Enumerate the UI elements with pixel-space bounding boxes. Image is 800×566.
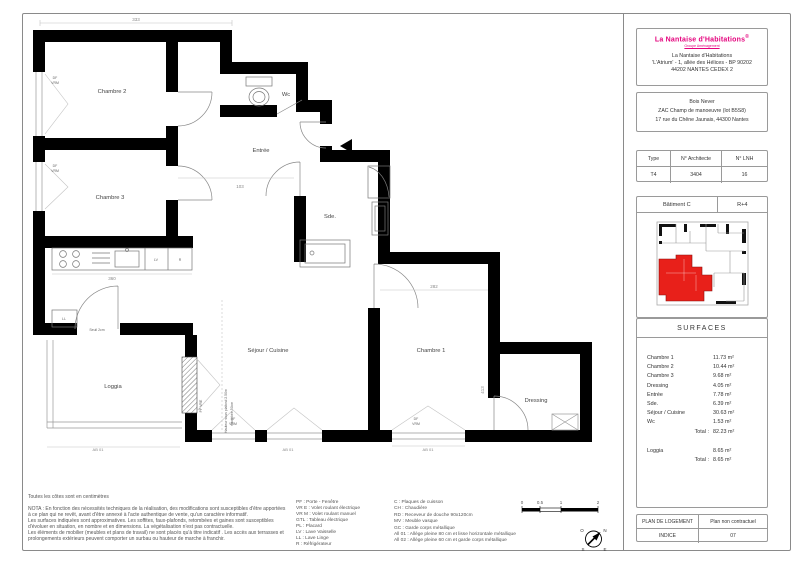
reference-table: Type N° Architecte N° LNH T4 3404 16 [636,150,768,182]
footer-indice-label: INDICE [637,529,699,543]
building-name: Bâtiment C [637,197,718,212]
surfaces-box: SURFACES Chambre 111.73 m² Chambre 210.4… [636,318,768,508]
scale-label-0: 0 [521,500,524,505]
legend-column-2: C : Plaques de cuisson CH : Chaudière RD… [394,500,520,545]
marker-df-2: DF [53,164,58,168]
surface-row: Chambre 210.44 m² [647,363,757,372]
location-mini-plan [656,221,749,306]
registered-mark: ® [745,34,749,40]
marker-df-4: DF [414,417,419,421]
ref-header-architecte: N° Architecte [671,151,722,167]
dim-chambre1-height: 413 [480,386,485,394]
building-header: Bâtiment C R+4 [637,197,767,213]
brand-subtitle: Groupe Aménagement [637,44,767,48]
marker-vrm-4: VRM [412,422,420,426]
marker-vrm-1: VRM [51,81,59,85]
marker-df-1: DF [53,76,58,80]
compass-north: N [603,528,606,533]
room-label-sde: Sde. [324,214,336,220]
marker-vrm-2: VRM [51,169,59,173]
surface-row: Chambre 111.73 m² [647,354,757,363]
ref-header-lnh: N° LNH [722,151,767,167]
marker-ab01-c: AB 01 [423,447,435,452]
ref-value-architecte: 3404 [671,167,722,183]
loggia-total-row: Total :8.65 m² [647,456,757,465]
room-label-sejour: Séjour / Cuisine [248,348,289,354]
compass-icon: O N S E [578,524,612,557]
program-line: Bois Never [637,98,767,107]
scale-bar: 0 0.5 1 2 [518,498,610,523]
compass-south: S [581,547,584,552]
address-line: 'L'Atrium' - 1, allée des Hélices - BP 9… [637,60,767,67]
marker-pf-vre: PF VRE [199,399,203,412]
surfaces-list: Chambre 111.73 m² Chambre 210.44 m² Cham… [637,354,767,465]
surface-row: Chambre 39.68 m² [647,372,757,381]
footer-plan-label: PLAN DE LOGEMENT [637,515,699,529]
notes-title: Toutes les côtes sont en centimètres [28,494,298,500]
surfaces-total-row: Total :82.23 m² [647,428,757,437]
building-level: R+4 [718,197,767,212]
notes-line: prolongements extérieurs peuvent comport… [28,536,298,542]
note-ceiling-2: retombée 50cm [230,402,234,426]
dim-chambre1-width: 282 [430,284,438,289]
scale-label-2: 2 [597,500,600,505]
room-label-chambre3: Chambre 3 [96,195,125,201]
room-label-dressing: Dressing [525,398,548,404]
compass-west: O [580,528,584,533]
ref-value-type: T4 [637,167,671,183]
legend-item: All 02 : Allège pleine 60 cm et garde co… [394,538,520,544]
footer-plan-value: Plan non contractuel [699,515,767,529]
building-box: Bâtiment C R+4 [636,196,768,318]
marker-lv: LV [154,258,159,262]
surface-row: Séjour / Cuisine30.63 m² [647,409,757,418]
program-box: Bois Never ZAC Champ de manoeuvre (lot B… [636,92,768,132]
surface-row: Entrée7.78 m² [647,391,757,400]
general-notes: Toutes les côtes sont en centimètres NOT… [28,494,298,542]
marker-ab01-b: AB 01 [283,447,295,452]
ref-header-type: Type [637,151,671,167]
legend-column-1: PF : Porte - Fenêtre VR E : Volet roulan… [296,500,392,548]
legend-item: R : Réfrigérateur [296,542,392,548]
surface-row: Dressing4.05 m² [647,382,757,391]
room-label-chambre2: Chambre 2 [98,89,127,95]
room-label-wc: Wc [282,92,290,98]
brand-logo: La Nantaise d'Habitations® [637,34,767,43]
surface-row: Wc1.53 m² [647,418,757,427]
address-line: 44202 NANTES CEDEX 2 [637,67,767,74]
note-ceiling-1: Hauteur sous plafond 2.50m [224,389,228,433]
loggia-row: Loggia8.65 m² [647,447,757,456]
dim-top: 333 [132,17,140,22]
surface-row: Sde.6.39 m² [647,400,757,409]
room-label-loggia: Loggia [104,384,122,390]
surfaces-title: SURFACES [637,319,767,338]
address-line: La Nantaise d'Habitations [637,53,767,60]
marker-ll: LL [62,317,66,321]
scale-label-05: 0.5 [537,500,544,505]
drawing-sheet: Chambre 2 Chambre 3 Wc Entrée Sde. Séjou… [0,0,800,566]
dimension-lines [40,20,488,447]
room-label-chambre1: Chambre 1 [417,348,446,354]
title-column-divider [623,13,624,551]
brand-address: La Nantaise d'Habitations 'L'Atrium' - 1… [637,53,767,74]
dim-kitchen: 360 [108,276,116,281]
ref-value-lnh: 16 [722,167,767,183]
scale-label-1: 1 [560,500,563,505]
floor-plan-svg: Chambre 2 Chambre 3 Wc Entrée Sde. Séjou… [22,12,622,490]
compass-east: E [603,547,606,552]
dim-entree: 103 [236,184,244,189]
room-label-entree: Entrée [252,148,269,154]
footer-indice-value: 07 [699,529,767,543]
loggia-bay-window [182,357,197,413]
program-line: ZAC Champ de manoeuvre (lot B5S8) [637,107,767,116]
note-seuil: Seuil 2cm [89,328,104,332]
footer-table: PLAN DE LOGEMENT Plan non contractuel IN… [636,514,768,542]
program-line: 17 rue du Chêne Jaunais, 44300 Nantes [637,116,767,125]
marker-ab01-a: AB 01 [93,447,105,452]
marker-r: R [179,258,182,262]
brand-box: La Nantaise d'Habitations® Groupe Aménag… [636,28,768,86]
